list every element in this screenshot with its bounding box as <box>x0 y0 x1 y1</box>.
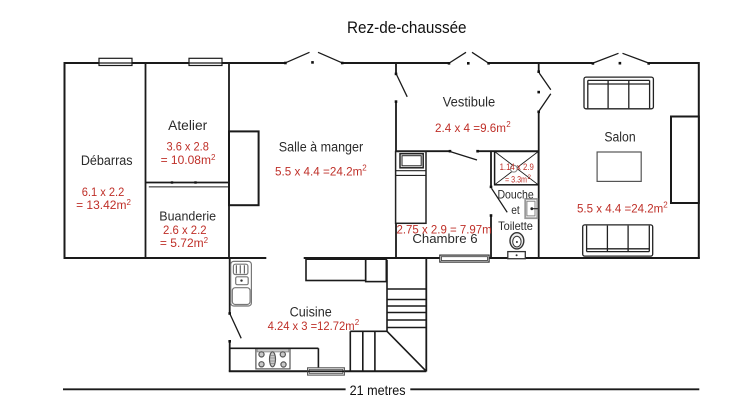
svg-text:2: 2 <box>528 174 532 181</box>
svg-text:2.4 x 4 =9.6m: 2.4 x 4 =9.6m <box>435 121 506 135</box>
svg-text:2.75 x 2.9 = 7.97m: 2.75 x 2.9 = 7.97m <box>397 223 492 237</box>
svg-text:2: 2 <box>506 120 511 129</box>
svg-text:Douche: Douche <box>497 188 534 202</box>
svg-text:2: 2 <box>362 164 367 173</box>
svg-text:= 5.72m2: = 5.72m2 <box>160 236 209 250</box>
svg-text:6.1 x 2.2: 6.1 x 2.2 <box>82 185 125 199</box>
svg-text:2.6 x 2.2: 2.6 x 2.2 <box>163 223 207 237</box>
svg-text:Rez-de-chaussée: Rez-de-chaussée <box>347 19 467 37</box>
svg-text:5.5 x 4.4 =24.2m: 5.5 x 4.4 =24.2m <box>577 201 663 215</box>
svg-text:Atelier: Atelier <box>168 118 208 133</box>
svg-text:et: et <box>511 203 520 217</box>
svg-text:4.24 x 3 =12.72m: 4.24 x 3 =12.72m <box>268 319 355 333</box>
svg-text:Buanderie: Buanderie <box>159 209 216 224</box>
svg-text:21 metres: 21 metres <box>350 382 406 398</box>
svg-text:Salle à manger: Salle à manger <box>279 139 364 154</box>
svg-text:Salon: Salon <box>604 129 635 144</box>
svg-text:3.6 x 2.8: 3.6 x 2.8 <box>167 140 210 154</box>
svg-text:Vestibule: Vestibule <box>443 94 496 109</box>
svg-text:1.14 x 2.9: 1.14 x 2.9 <box>500 162 534 172</box>
svg-text:5.5 x 4.4 =24.2m: 5.5 x 4.4 =24.2m <box>275 165 362 179</box>
svg-text:= 13.42m2: = 13.42m2 <box>76 198 131 212</box>
svg-text:2: 2 <box>663 200 668 209</box>
svg-text:= 10.08m2: = 10.08m2 <box>161 153 216 167</box>
svg-text:Toilette: Toilette <box>498 219 533 233</box>
svg-text:Cuisine: Cuisine <box>290 305 332 320</box>
svg-text:Débarras: Débarras <box>81 153 133 168</box>
svg-text:2: 2 <box>355 318 360 327</box>
svg-text:= 3.3m: = 3.3m <box>505 175 527 185</box>
